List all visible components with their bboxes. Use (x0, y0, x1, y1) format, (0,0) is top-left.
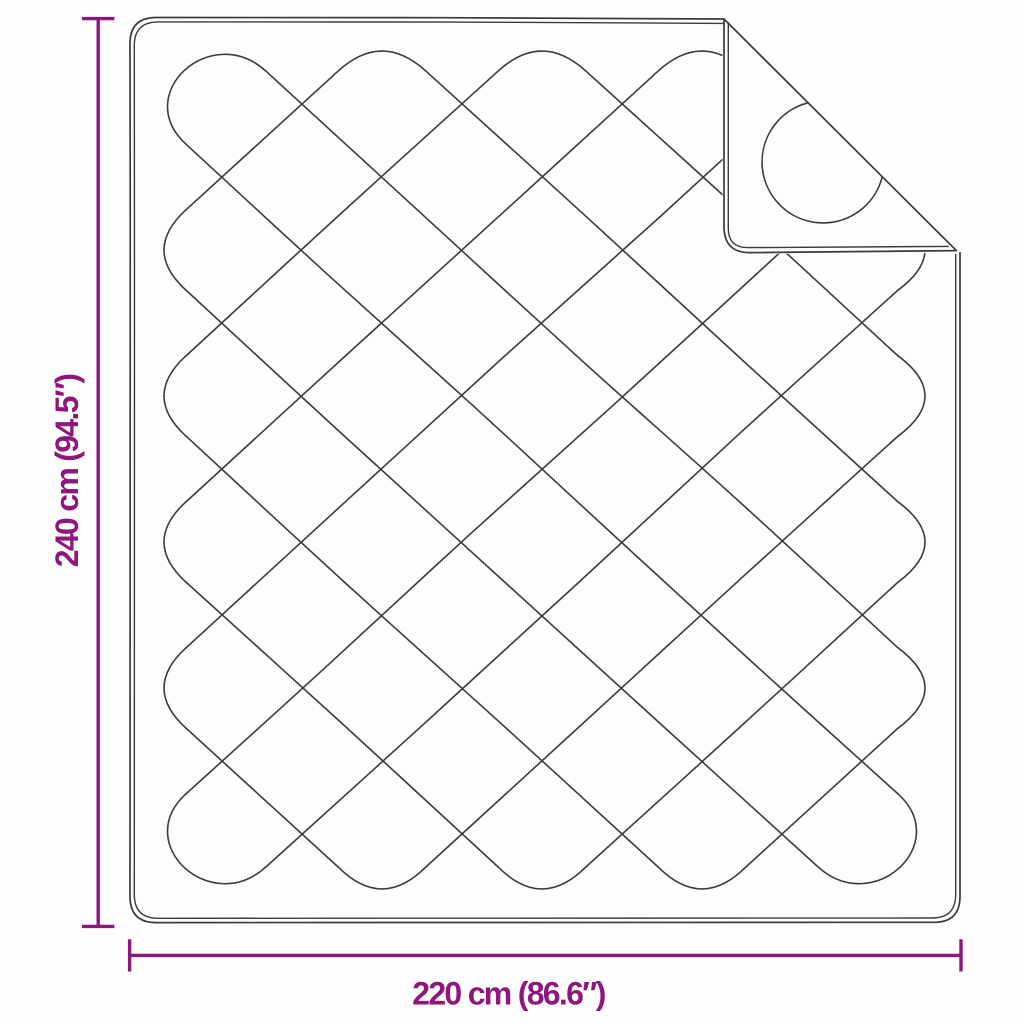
svg-text:240 cm (94.5″): 240 cm (94.5″) (49, 374, 85, 568)
svg-text:220 cm (86.6″): 220 cm (86.6″) (412, 976, 606, 1012)
